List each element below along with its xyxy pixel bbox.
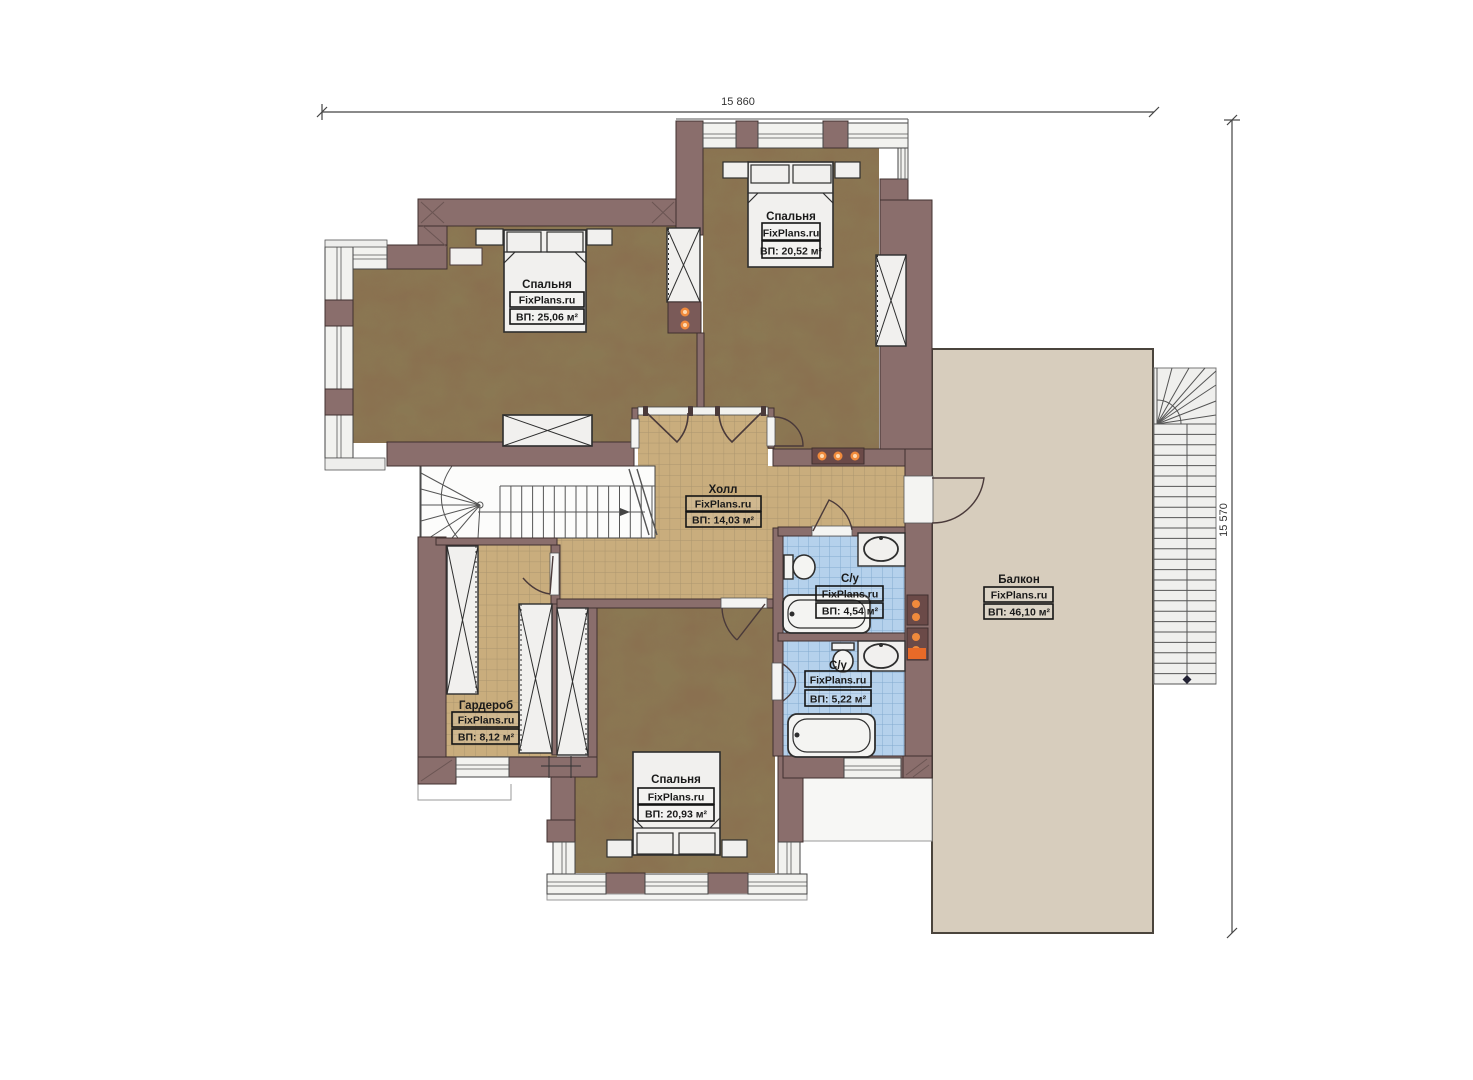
svg-text:ВП: 20,52 м²: ВП: 20,52 м² (760, 246, 823, 258)
svg-text:ВП: 20,93 м²: ВП: 20,93 м² (645, 809, 708, 821)
svg-text:Холл: Холл (709, 484, 738, 496)
svg-text:Спальня: Спальня (651, 774, 701, 786)
svg-text:Балкон: Балкон (998, 574, 1040, 586)
svg-text:ВП: 25,06 м²: ВП: 25,06 м² (516, 312, 579, 324)
svg-text:15 860: 15 860 (721, 96, 755, 108)
svg-text:FixPlans.ru: FixPlans.ru (458, 715, 515, 727)
svg-text:FixPlans.ru: FixPlans.ru (648, 792, 705, 804)
svg-text:ВП: 8,12 м²: ВП: 8,12 м² (458, 732, 515, 744)
svg-text:Гардероб: Гардероб (459, 700, 513, 712)
svg-text:ВП: 4,54 м²: ВП: 4,54 м² (822, 606, 879, 618)
svg-text:FixPlans.ru: FixPlans.ru (991, 590, 1048, 602)
svg-text:FixPlans.ru: FixPlans.ru (763, 228, 820, 240)
svg-text:ВП: 5,22 м²: ВП: 5,22 м² (810, 694, 867, 706)
svg-text:ВП: 46,10 м²: ВП: 46,10 м² (988, 607, 1051, 619)
svg-text:Спальня: Спальня (766, 211, 816, 223)
svg-text:Спальня: Спальня (522, 279, 572, 291)
svg-text:FixPlans.ru: FixPlans.ru (519, 295, 576, 307)
svg-text:С/у: С/у (841, 573, 860, 585)
svg-text:FixPlans.ru: FixPlans.ru (822, 589, 879, 601)
svg-text:ВП: 14,03 м²: ВП: 14,03 м² (692, 515, 755, 527)
svg-text:FixPlans.ru: FixPlans.ru (810, 675, 867, 687)
svg-text:FixPlans.ru: FixPlans.ru (695, 499, 752, 511)
svg-text:15 570: 15 570 (1218, 503, 1230, 537)
